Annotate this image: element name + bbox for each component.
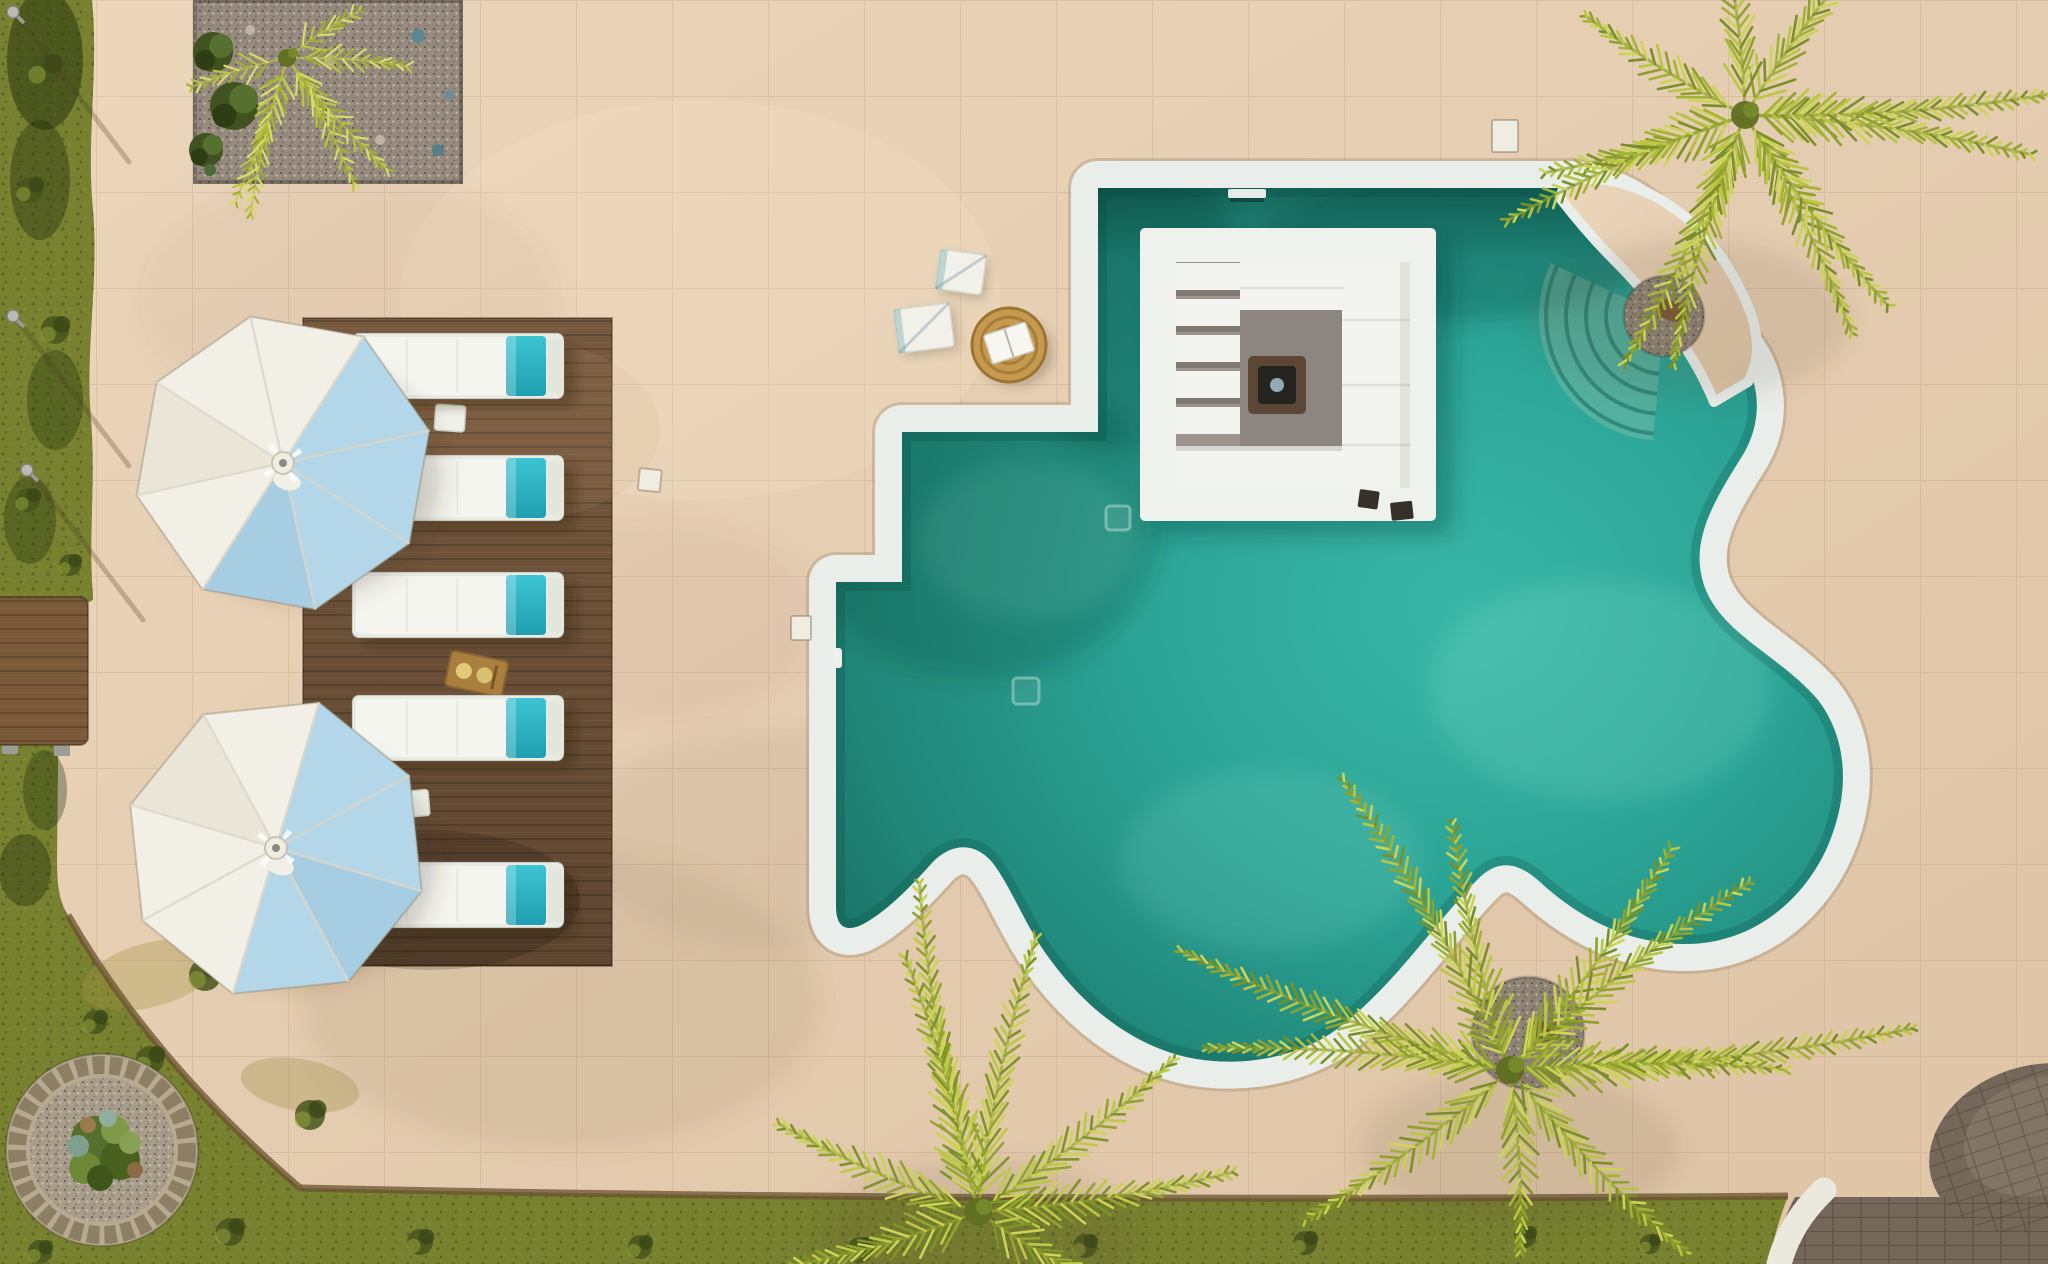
gravel-planting-bed — [189, 0, 463, 184]
stone — [375, 135, 385, 145]
planter-plant — [99, 1109, 117, 1127]
circular-stone-planter — [6, 1054, 198, 1246]
utility-cover — [791, 616, 811, 640]
speaker — [1357, 489, 1379, 510]
sun-lounger — [352, 572, 576, 647]
pool-grab-rail — [833, 648, 842, 668]
sunken-lounge-island — [1140, 228, 1452, 534]
island-sofa-top — [1240, 262, 1344, 310]
pool-skimmer — [1228, 189, 1266, 198]
planter-plant — [80, 1117, 96, 1133]
planter-plant — [119, 1132, 141, 1154]
utility-cover — [1492, 120, 1518, 152]
folded-towel — [894, 302, 961, 358]
island-slatted-steps — [1176, 263, 1240, 434]
pool-drain — [1106, 506, 1130, 530]
stone — [432, 144, 444, 156]
stone — [444, 90, 454, 100]
planter-plant — [67, 1135, 89, 1157]
folded-towel — [935, 249, 992, 301]
stone — [204, 164, 216, 176]
speaker — [1390, 501, 1414, 521]
island-sofa-right — [1342, 262, 1410, 488]
lounger-cushion — [356, 576, 508, 634]
wooden-bench — [0, 597, 88, 756]
lounger-cushion — [356, 699, 508, 757]
stone — [411, 29, 425, 43]
planter-plant — [87, 1165, 113, 1191]
fire-pit-table — [1248, 356, 1306, 414]
aerial-photo-villa-pool: Aerial view of a villa terrace with free… — [0, 0, 2048, 1264]
scene-canvas — [0, 0, 2048, 1264]
utility-cover — [638, 468, 662, 492]
pool-drain — [1013, 678, 1039, 704]
stone — [245, 25, 255, 35]
side-table — [434, 404, 466, 432]
planter-plant — [127, 1162, 143, 1178]
